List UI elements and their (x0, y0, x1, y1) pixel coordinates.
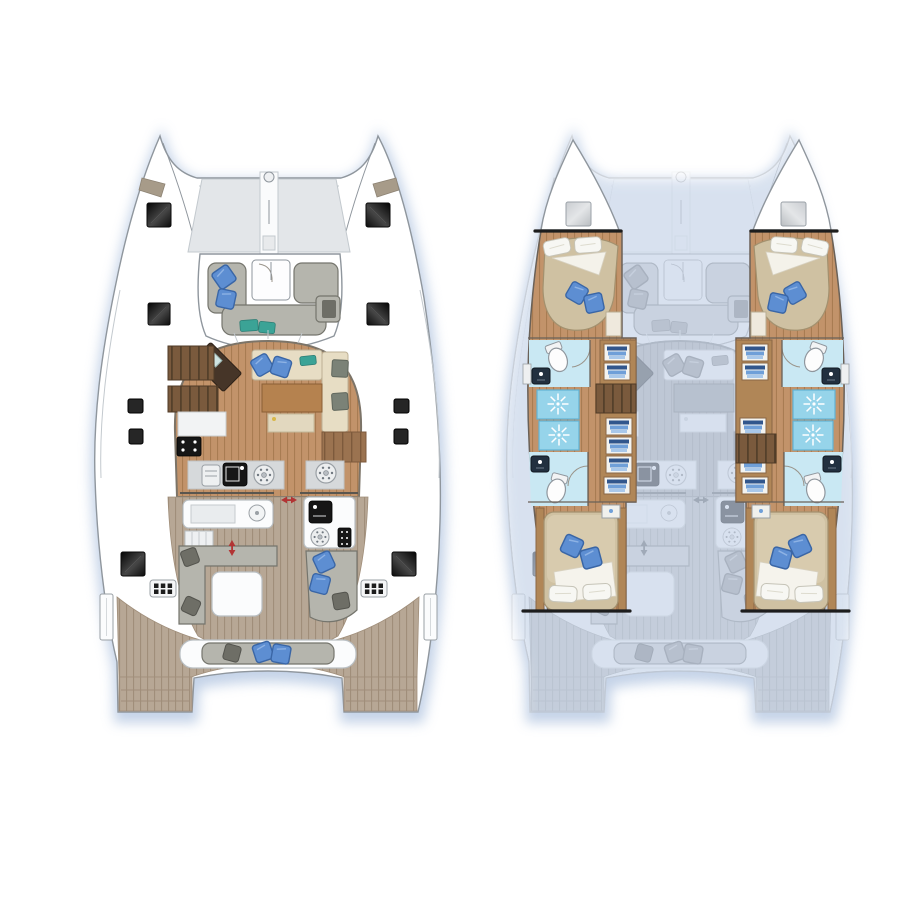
floor-plan-canvas (0, 0, 900, 900)
starboard-companionway-stairs (736, 434, 776, 463)
port-companionway-stairs (596, 384, 636, 413)
deck-plan-view (95, 136, 441, 712)
